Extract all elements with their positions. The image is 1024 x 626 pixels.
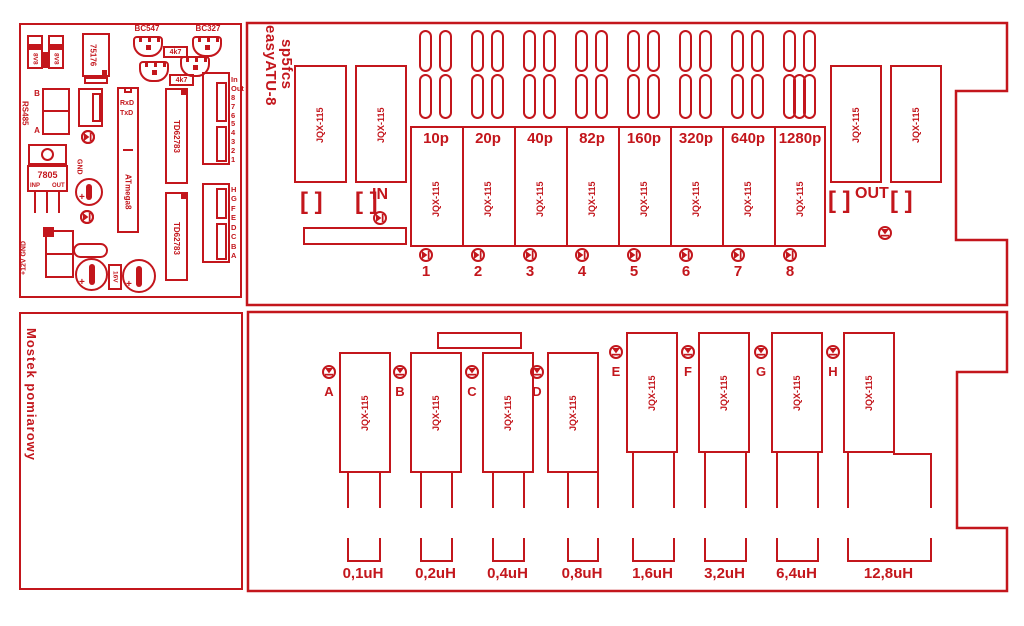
rs485-terminal-divider	[42, 110, 70, 112]
header-in-out-pin-label: 2	[231, 147, 245, 155]
header-h-a-pin-label: C	[231, 233, 245, 241]
trimmer-capacitor-pill	[523, 30, 536, 72]
capacitor-relay-number: 8	[778, 262, 802, 280]
capacitor-relay-label: JQX-115	[584, 158, 600, 240]
header-in-out-key-1	[216, 82, 227, 122]
coil-trace	[523, 538, 525, 562]
coil-trace	[673, 538, 675, 562]
inductor-top-jumper	[437, 332, 522, 349]
capacitor-relay-label: JQX-115	[428, 158, 444, 240]
coil-trace	[420, 560, 453, 562]
bridge-board-title: Mostek pomiarowy	[24, 328, 39, 461]
trimmer-capacitor-pill	[793, 74, 806, 119]
header-in-out-pin-label: 3	[231, 138, 245, 146]
driver-1-pin1-dot	[181, 90, 186, 95]
coil-trace	[817, 453, 819, 508]
header-h-a-key-1	[216, 188, 227, 219]
trimmer-capacitor-pill	[439, 74, 452, 119]
coil-trace	[420, 538, 422, 562]
inductor-value-label: 12,8uH	[835, 564, 942, 582]
coil-trace	[817, 538, 819, 562]
inductor-relay-diode	[754, 345, 768, 359]
coil-trace	[930, 538, 932, 562]
mcu-rxd-label: RxD	[120, 100, 134, 107]
regulator-hole	[41, 148, 54, 161]
inductor-relay-diode	[465, 365, 479, 379]
coil-trace	[632, 560, 675, 562]
zener-link	[41, 52, 50, 68]
bus-bar	[303, 227, 407, 245]
coil-trace	[523, 473, 525, 508]
coil-trace	[745, 538, 747, 562]
out-diode	[878, 226, 892, 240]
capacitor-value-label: 40p	[514, 130, 566, 146]
header-h-a-pin-label: B	[231, 243, 245, 251]
header-h-a-pin-label: D	[231, 224, 245, 232]
board-title-line2: sp5fcs	[278, 39, 294, 150]
relay-out-2-label: JQX-115	[908, 85, 924, 165]
trimmer-capacitor-pill	[679, 30, 692, 72]
coil-trace	[893, 453, 932, 455]
inductor-relay-diode	[530, 365, 544, 379]
header-h-a-labels: HGFEDCBA	[231, 186, 245, 260]
cap-16v-label: 16V	[109, 265, 121, 289]
in-label: IN	[372, 186, 388, 204]
coil-trace	[347, 560, 381, 562]
coil-trace	[704, 560, 747, 562]
fuse	[73, 243, 108, 258]
inductor-relay-label: JQX-115	[716, 352, 732, 434]
header-in-out-pin-label: 1	[231, 156, 245, 164]
trimmer-capacitor-pill	[783, 30, 796, 72]
inductor-relay-label: JQX-115	[861, 352, 877, 434]
capacitor-relay-label: JQX-115	[532, 158, 548, 240]
resistor-4k7-2: 4k7	[169, 74, 194, 86]
trimmer-capacitor-pill	[731, 74, 744, 119]
in-footprint-bracket-1: [ ]	[300, 188, 323, 216]
regulator-label: 7805	[27, 169, 68, 180]
coil-trace	[567, 538, 569, 562]
inductor-value-label: 0,2uH	[408, 564, 463, 582]
diode-symbol-2	[80, 210, 94, 224]
trimmer-capacitor-pill	[751, 74, 764, 119]
coil-trace	[567, 473, 569, 508]
header-in-out-pin-label: 7	[231, 103, 245, 111]
header-in-out-key-2	[216, 126, 227, 162]
rs485-pin-a: A	[32, 125, 42, 135]
capacitor-value-label: 1280p	[774, 130, 826, 146]
capacitor-relay-diode	[575, 248, 589, 262]
in-diode	[373, 211, 387, 225]
inductor-relay-diode	[681, 345, 695, 359]
capacitor-relay-label: JQX-115	[740, 158, 756, 240]
mcu-dash	[123, 149, 133, 151]
coil-trace	[379, 538, 381, 562]
relay-out-1-label: JQX-115	[848, 85, 864, 165]
trimmer-capacitor-pill	[595, 74, 608, 119]
trimmer-capacitor-pill	[803, 30, 816, 72]
relay-in-2-label: JQX-115	[373, 85, 389, 165]
inductor-relay-label: JQX-115	[428, 372, 444, 454]
coil-trace	[347, 538, 349, 562]
capacitor-relay-diode	[627, 248, 641, 262]
capacitor-relay-label: JQX-115	[688, 158, 704, 240]
inductor-value-label: 1,6uH	[620, 564, 685, 582]
capacitor-relay-diode	[471, 248, 485, 262]
header-in-out-pin-label: 5	[231, 120, 245, 128]
out-footprint-bracket-2: [ ]	[890, 187, 913, 215]
coil-trace	[704, 453, 706, 508]
capacitor-relay-number: 1	[414, 262, 438, 280]
trimmer-capacitor-pill	[595, 30, 608, 72]
trimmer-capacitor-pill	[699, 30, 712, 72]
trimmer-capacitor-pill	[471, 74, 484, 119]
coil-trace	[379, 473, 381, 508]
bridge-board	[19, 312, 243, 590]
header-in-out-pin-label: Out	[231, 85, 245, 93]
ic-75176-pins	[84, 77, 108, 84]
coil-trace	[451, 538, 453, 562]
inductor-value-label: 0,8uH	[555, 564, 609, 582]
capacitor-relay-diode	[783, 248, 797, 262]
capacitor-value-label: 10p	[410, 130, 462, 146]
bc327-label: BC327	[189, 23, 227, 33]
inductor-relay-label: JQX-115	[565, 372, 581, 454]
capacitor-relay-diode	[679, 248, 693, 262]
regulator-out-label: OUT	[52, 183, 65, 189]
coil-trace	[673, 453, 675, 508]
coil-trace	[930, 453, 932, 508]
electrolytic-cap-1: +	[75, 178, 103, 206]
regulator-leg-3	[58, 192, 60, 213]
bc547-label: BC547	[128, 23, 166, 33]
mcu-notch	[124, 87, 132, 93]
resistor-4k7-1: 4k7	[163, 46, 188, 58]
capacitor-relay-number: 2	[466, 262, 490, 280]
coil-trace	[492, 538, 494, 562]
inductor-relay-label: JQX-115	[644, 352, 660, 434]
inductor-relay-diode	[322, 365, 336, 379]
inductor-relay-label: JQX-115	[789, 352, 805, 434]
inductor-relay-letter: B	[392, 383, 408, 399]
trimmer-capacitor-pill	[699, 74, 712, 119]
capacitor-relay-diode	[419, 248, 433, 262]
header-h-a-pin-label: E	[231, 214, 245, 222]
coil-trace	[632, 538, 634, 562]
inductor-relay-label: JQX-115	[500, 372, 516, 454]
inductor-value-label: 3,2uH	[692, 564, 757, 582]
electrolytic-cap-3: +	[122, 259, 156, 293]
board-title-line1: easyATU-8	[262, 25, 278, 150]
capacitor-relay-diode	[731, 248, 745, 262]
capacitor-relay-number: 7	[726, 262, 750, 280]
coil-trace	[420, 473, 422, 508]
inductor-relay-diode	[393, 365, 407, 379]
inductor-relay-letter: D	[529, 383, 545, 399]
header-h-a-pin-label: H	[231, 186, 245, 194]
trimmer-capacitor-pill	[491, 30, 504, 72]
rs485-pin-b: B	[32, 88, 42, 98]
inductor-relay-letter: F	[680, 363, 696, 379]
header-in-out-pin-label: 4	[231, 129, 245, 137]
coil-trace	[776, 560, 819, 562]
coil-trace	[847, 538, 849, 562]
inductor-relay-letter: H	[825, 363, 841, 379]
trimmer-capacitor-pill	[543, 30, 556, 72]
diode-symbol-1	[81, 130, 95, 144]
header-in-out-pin-label: 6	[231, 112, 245, 120]
capacitor-value-label: 20p	[462, 130, 514, 146]
regulator-leg-1	[34, 192, 36, 213]
trimmer-capacitor-pill	[543, 74, 556, 119]
out-footprint-bracket-1: [ ]	[828, 187, 851, 215]
coil-trace	[847, 453, 849, 508]
power-terminal-divider	[45, 253, 74, 255]
mcu-label: ATmega8	[121, 156, 135, 228]
coil-trace	[847, 560, 932, 562]
coil-trace	[632, 453, 634, 508]
trimmer-capacitor-pill	[627, 30, 640, 72]
inductor-relay-label: JQX-115	[357, 372, 373, 454]
inductor-relay-diode	[826, 345, 840, 359]
power-label: +12V GND	[18, 232, 30, 284]
capacitor-relay-label: JQX-115	[480, 158, 496, 240]
trimmer-capacitor-pill	[627, 74, 640, 119]
capacitor-value-label: 82p	[566, 130, 618, 146]
coil-trace	[567, 560, 599, 562]
trimmer-capacitor-pill	[439, 30, 452, 72]
capacitor-relay-number: 6	[674, 262, 698, 280]
trimmer-capacitor-pill	[647, 74, 660, 119]
trimmer-capacitor-pill	[575, 74, 588, 119]
trimmer-capacitor-pill	[575, 30, 588, 72]
capacitor-value-label: 160p	[618, 130, 670, 146]
coil-trace	[597, 538, 599, 562]
capacitor-relay-number: 3	[518, 262, 542, 280]
capacitor-value-label: 640p	[722, 130, 774, 146]
inductor-relay-letter: A	[321, 383, 337, 399]
coil-trace	[745, 453, 747, 508]
coil-trace	[451, 473, 453, 508]
coil-trace	[492, 560, 525, 562]
trimmer-capacitor-pill	[471, 30, 484, 72]
header-h-a-pin-label: A	[231, 252, 245, 260]
ic-75176-label: 75176	[86, 35, 100, 75]
header-in-out-pin-label: 8	[231, 94, 245, 102]
inductor-relay-letter: G	[753, 363, 769, 379]
trimmer-capacitor-pill	[751, 30, 764, 72]
capacitor-value-label: 320p	[670, 130, 722, 146]
coil-trace	[776, 453, 778, 508]
trimmer-capacitor-pill	[731, 30, 744, 72]
trimmer-capacitor-pill	[647, 30, 660, 72]
inductor-value-label: 0,1uH	[335, 564, 391, 582]
coil-trace	[597, 473, 599, 508]
capacitor-relay-label: JQX-115	[636, 158, 652, 240]
capacitor-relay-number: 4	[570, 262, 594, 280]
board-title: easyATU-8 sp5fcs	[262, 25, 294, 150]
trimmer-capacitor-pill	[679, 74, 692, 119]
header-in-out-pin-label: In	[231, 76, 245, 84]
trimmer-capacitor-pill	[419, 30, 432, 72]
inductor-relay-letter: E	[608, 363, 624, 379]
regulator-inp-label: INP	[30, 183, 40, 189]
rs485-label: RS485	[19, 90, 31, 136]
header-in-out-labels: InOut87654321	[231, 76, 245, 164]
coil-trace	[776, 538, 778, 562]
inductor-relay-diode	[609, 345, 623, 359]
capacitor-block-inner	[92, 93, 101, 122]
gnd-label: GND	[73, 155, 85, 179]
trimmer-capacitor-pill	[523, 74, 536, 119]
driver-2-label: TD62783	[169, 198, 184, 278]
header-h-a-key-2	[216, 223, 227, 260]
coil-trace	[492, 473, 494, 508]
zener-1-label: 8V8	[28, 50, 42, 68]
capacitor-relay-diode	[523, 248, 537, 262]
inductor-relay-letter: C	[464, 383, 480, 399]
inductor-value-label: 6,4uH	[764, 564, 829, 582]
coil-trace	[347, 473, 349, 508]
header-h-a-pin-label: F	[231, 205, 245, 213]
electrolytic-cap-2: +	[75, 258, 108, 291]
trimmer-capacitor-pill	[491, 74, 504, 119]
pcb-silkscreen-layout: 8V8 8V8 75176 BC547 BC327 4k7 4k7 RS485 …	[0, 0, 1024, 626]
capacitor-relay-number: 5	[622, 262, 646, 280]
inductor-value-label: 0,4uH	[480, 564, 535, 582]
capacitor-relay-label: JQX-115	[792, 158, 808, 240]
trimmer-capacitor-pill	[419, 74, 432, 119]
regulator-leg-2	[46, 192, 48, 213]
header-h-a-pin-label: G	[231, 195, 245, 203]
mcu-txd-label: TxD	[120, 110, 133, 117]
ic-75176-pin1-dot	[102, 70, 107, 75]
driver-1-label: TD62783	[169, 96, 184, 176]
out-label: OUT	[855, 185, 889, 203]
zener-2-label: 8V8	[49, 50, 63, 68]
relay-in-1-label: JQX-115	[312, 85, 328, 165]
coil-trace	[704, 538, 706, 562]
